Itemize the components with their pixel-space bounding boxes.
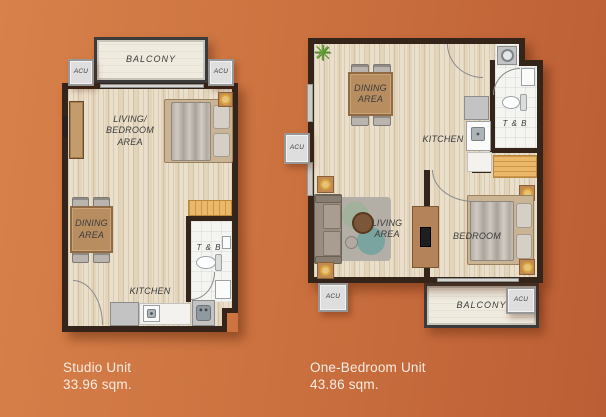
sink-basin-icon <box>147 309 156 318</box>
wall-tv-icon <box>63 116 68 138</box>
ottoman <box>345 236 358 249</box>
dining-chair <box>93 252 110 263</box>
studio-caption-name: Studio Unit <box>63 360 132 377</box>
sofa <box>314 194 342 264</box>
window-strip <box>307 162 313 196</box>
toilet-icon <box>502 96 520 109</box>
sofa-armrest <box>315 195 342 203</box>
onebr-closet <box>493 155 537 178</box>
acu-label: ACU <box>326 293 340 301</box>
studio-caption-area: 33.96 sqm. <box>63 377 132 394</box>
onebr-bed <box>467 195 534 265</box>
lamp-ring-icon <box>220 94 231 105</box>
bedside-table <box>519 259 535 275</box>
window-strip <box>307 84 313 122</box>
onebr-caption-name: One-Bedroom Unit <box>310 360 426 377</box>
bed-pillow <box>516 203 532 228</box>
lamp-ring-icon <box>320 179 331 190</box>
toilet-tank-icon <box>215 254 222 271</box>
side-table <box>317 176 334 193</box>
studio-dining-label: DINING AREA <box>75 218 108 241</box>
studio-tb-label: T & B <box>192 243 226 253</box>
bathroom-sink-icon <box>521 68 535 86</box>
bed-pillow <box>213 133 230 157</box>
bed-pillow <box>516 234 532 259</box>
tv-console <box>412 206 439 268</box>
onebr-caption-area: 43.86 sqm. <box>310 377 426 394</box>
sink-basin-icon <box>471 127 485 141</box>
bedside-lamp-icon <box>218 92 233 107</box>
studio-kitchen-label: KITCHEN <box>125 286 175 297</box>
studio-closet <box>188 200 232 216</box>
tb-wall <box>186 216 238 221</box>
acu-label: ACU <box>214 68 228 76</box>
dining-chair <box>373 115 391 126</box>
dining-chair <box>72 252 89 263</box>
refrigerator-icon <box>110 302 139 326</box>
kitchen-counter-top <box>464 96 489 120</box>
onebr-living-label: LIVING AREA <box>362 218 412 241</box>
acu-label: ACU <box>74 68 88 76</box>
onebr-acu-bottom: ACU <box>318 283 348 312</box>
side-table <box>317 262 334 279</box>
studio-acu-left: ACU <box>68 59 94 86</box>
studio-dining-table: DINING AREA <box>70 206 113 253</box>
onebr-kitchen-label: KITCHEN <box>418 134 468 145</box>
onebr-acu-left: ACU <box>284 133 310 164</box>
studio-wall-notch <box>222 308 238 332</box>
tb-wall <box>519 60 543 66</box>
studio-cabinet <box>69 101 84 159</box>
lamp-ring-icon <box>320 265 331 276</box>
onebr-dining-label: DINING AREA <box>354 83 387 106</box>
kitchen-sink-icon <box>143 305 160 322</box>
onebr-tb-label: T & B <box>498 119 532 129</box>
studio-living-bedroom-label: LIVING/ BEDROOM AREA <box>98 114 162 148</box>
floor-plans-canvas: BALCONY ACU ACU LIVING/ BEDROOM AREA DIN… <box>0 0 606 417</box>
balcony-sliding-door <box>437 278 519 282</box>
washing-machine-icon <box>497 46 517 65</box>
dining-chair <box>351 115 369 126</box>
acu-label: ACU <box>290 144 304 152</box>
kitchen-sink-icon <box>466 121 491 151</box>
onebr-caption: One-Bedroom Unit 43.86 sqm. <box>310 360 426 394</box>
onebr-acu-balcony: ACU <box>506 287 536 314</box>
washer-drum-icon <box>501 49 514 62</box>
studio-balcony-label: BALCONY <box>126 54 176 65</box>
acu-label: ACU <box>514 296 528 304</box>
toilet-tank-icon <box>520 94 527 111</box>
sofa-cushion <box>323 204 341 229</box>
kitchen-counter <box>467 152 492 172</box>
oven-door-icon <box>196 305 211 321</box>
bed-blanket <box>171 102 211 161</box>
studio-bed <box>164 99 233 163</box>
studio-caption: Studio Unit 33.96 sqm. <box>63 360 132 394</box>
toilet-icon <box>196 256 216 269</box>
plant-icon: ✳ <box>313 42 331 64</box>
studio-acu-right: ACU <box>208 59 234 86</box>
studio-balcony-sliding-door <box>100 84 204 88</box>
onebr-balcony-label: BALCONY <box>456 300 506 311</box>
sofa-cushion <box>323 231 341 256</box>
oven-icon <box>192 300 215 326</box>
onebr-dining-table: DINING AREA <box>348 72 393 116</box>
shower-icon <box>215 280 231 299</box>
tv-icon <box>420 227 431 247</box>
studio-balcony: BALCONY <box>94 37 208 83</box>
onebr-bedroom-label: BEDROOM <box>448 231 506 242</box>
tb-wall <box>490 148 537 153</box>
lamp-ring-icon <box>522 262 533 273</box>
bed-pillow <box>213 105 230 129</box>
